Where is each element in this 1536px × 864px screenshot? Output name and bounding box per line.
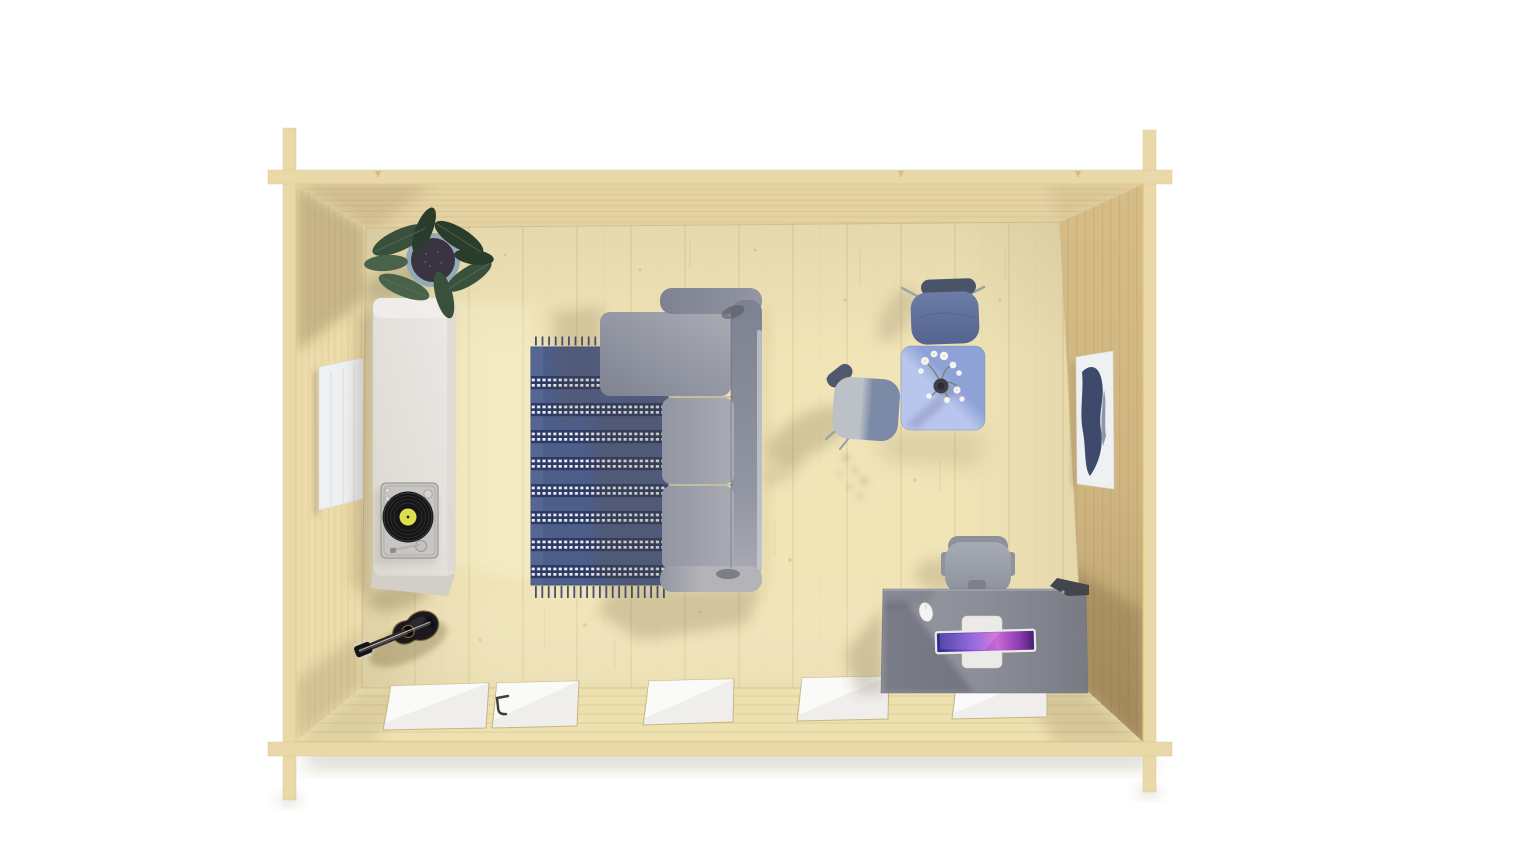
glazed-door-pane-right [492, 681, 579, 728]
bottom-wall-band [268, 742, 1172, 756]
speed-dial [424, 490, 432, 498]
backrest-rim-light [757, 330, 762, 570]
spindle [407, 516, 410, 519]
artwork-shadow [1071, 362, 1076, 486]
right-wall-band [1143, 130, 1156, 792]
seat-cushion [662, 398, 734, 484]
seat-cushion [662, 486, 734, 570]
canvas-shadow [313, 369, 319, 516]
shading [447, 305, 455, 571]
tonearm-cartridge [390, 548, 397, 554]
sofa-shadow [592, 388, 668, 590]
render-stage [0, 0, 1536, 864]
mountain-artwork [1076, 351, 1114, 489]
sofa-shadow [762, 310, 770, 580]
bistro-table [901, 346, 985, 430]
chaise-cushion [600, 312, 731, 396]
sunlight-patch [448, 298, 531, 580]
left-wall-band [283, 128, 296, 800]
glazed-door-pane-left [383, 683, 489, 730]
chair-seat [910, 291, 980, 345]
turntable [375, 483, 438, 565]
sofa-corner-crease [716, 569, 740, 579]
lamp-joint [1061, 590, 1064, 593]
window-pane-1 [643, 679, 734, 725]
vase-mouth [938, 383, 945, 390]
top-wall-band [268, 170, 1172, 184]
control-knob [385, 488, 390, 493]
control-knob [385, 496, 390, 501]
cabin-top-view [0, 0, 1536, 864]
armrest-bottom [660, 566, 762, 592]
office-chair [941, 536, 1015, 594]
chair-seat [831, 376, 901, 442]
